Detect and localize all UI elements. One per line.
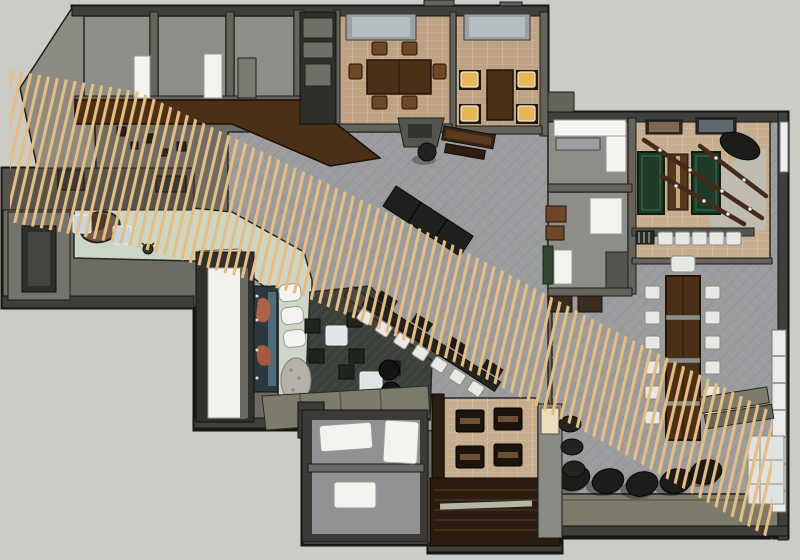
wardrobe [606, 252, 628, 288]
light-dot [674, 184, 678, 188]
shelf-unit [238, 58, 256, 98]
counter [554, 120, 626, 136]
white-table [590, 198, 622, 234]
rock-speckle [291, 388, 294, 391]
mural-wall [254, 286, 278, 392]
chair [705, 336, 720, 349]
mural-art-orange [256, 298, 270, 323]
chair [645, 311, 660, 324]
chair [372, 96, 387, 109]
mural-bolt [256, 295, 259, 298]
light-dot [658, 148, 662, 152]
pouf [379, 360, 399, 380]
mural-bolt [256, 319, 259, 322]
bench [283, 329, 307, 348]
kitchen-hood-vent [408, 124, 432, 138]
kitchen-equipment [303, 42, 333, 58]
chair [705, 286, 720, 299]
light-dot [702, 199, 706, 203]
table-clasp [666, 315, 700, 320]
stool [709, 232, 724, 245]
rock-speckle [289, 368, 292, 371]
cube-seat [309, 349, 324, 363]
left-room-door [28, 232, 50, 286]
wall-art [649, 122, 679, 132]
light-dot [688, 168, 692, 172]
kitchen-equipment [303, 18, 333, 38]
booth-table [460, 418, 480, 424]
top-window [780, 122, 788, 172]
booth-surround-wood [432, 394, 444, 484]
light-dot [720, 189, 724, 193]
wall-art [699, 120, 733, 132]
lit-seat [461, 72, 478, 87]
cube-seat [339, 365, 354, 379]
wall [450, 12, 456, 134]
wall [226, 12, 234, 104]
chair [402, 96, 417, 109]
chair [433, 64, 446, 79]
steel-counter [556, 138, 600, 150]
light-dot [726, 212, 730, 216]
booth-table [498, 416, 518, 422]
restrooms [302, 410, 428, 542]
chair [349, 64, 362, 79]
light-dot [748, 207, 752, 211]
stool [658, 232, 673, 245]
wall [632, 258, 772, 264]
mural-bolt [256, 349, 259, 352]
fixture [319, 422, 373, 452]
fixture [334, 482, 376, 508]
chair [645, 286, 660, 299]
stool [692, 232, 707, 245]
wall [628, 118, 636, 294]
chair [372, 42, 387, 55]
lit-seat [461, 106, 478, 121]
skylight-glass [469, 17, 525, 37]
chair [645, 336, 660, 349]
lit-seat [518, 106, 535, 121]
wall [150, 12, 158, 104]
round-table [418, 143, 436, 161]
fixture [383, 420, 419, 464]
counter [606, 136, 626, 172]
floor-mat [578, 296, 602, 312]
bench [280, 306, 304, 325]
floorplan-svg [0, 0, 800, 560]
kitchen-equipment [305, 64, 331, 86]
games-bar-stools [658, 232, 741, 245]
barrel [563, 461, 585, 477]
desk [546, 206, 566, 222]
light-dot [714, 156, 718, 160]
chair [705, 361, 720, 374]
door-panel [204, 54, 222, 98]
rock-speckle [297, 376, 300, 379]
green-mat [543, 246, 553, 284]
private-table [487, 70, 513, 120]
wall [548, 184, 632, 192]
desk-chair [546, 226, 564, 240]
stool [675, 232, 690, 245]
chair [671, 256, 695, 272]
booth-table [498, 452, 518, 458]
wall [540, 12, 548, 136]
wall-step [548, 92, 574, 114]
cube-seat [349, 349, 364, 363]
chair [705, 311, 720, 324]
vestibule-inner-wall [240, 268, 248, 418]
stool [726, 232, 741, 245]
restroom-divider [308, 464, 424, 472]
barrel [561, 439, 583, 455]
cube-seat [305, 319, 320, 333]
booth-table [460, 454, 480, 460]
wall [548, 288, 632, 296]
skylight-glass [352, 17, 410, 37]
mural-bolt [256, 377, 259, 380]
chair [402, 42, 417, 55]
white-sofa [554, 250, 572, 284]
light-dot [742, 178, 746, 182]
lit-seat [518, 72, 535, 87]
coffee-table [326, 326, 347, 345]
